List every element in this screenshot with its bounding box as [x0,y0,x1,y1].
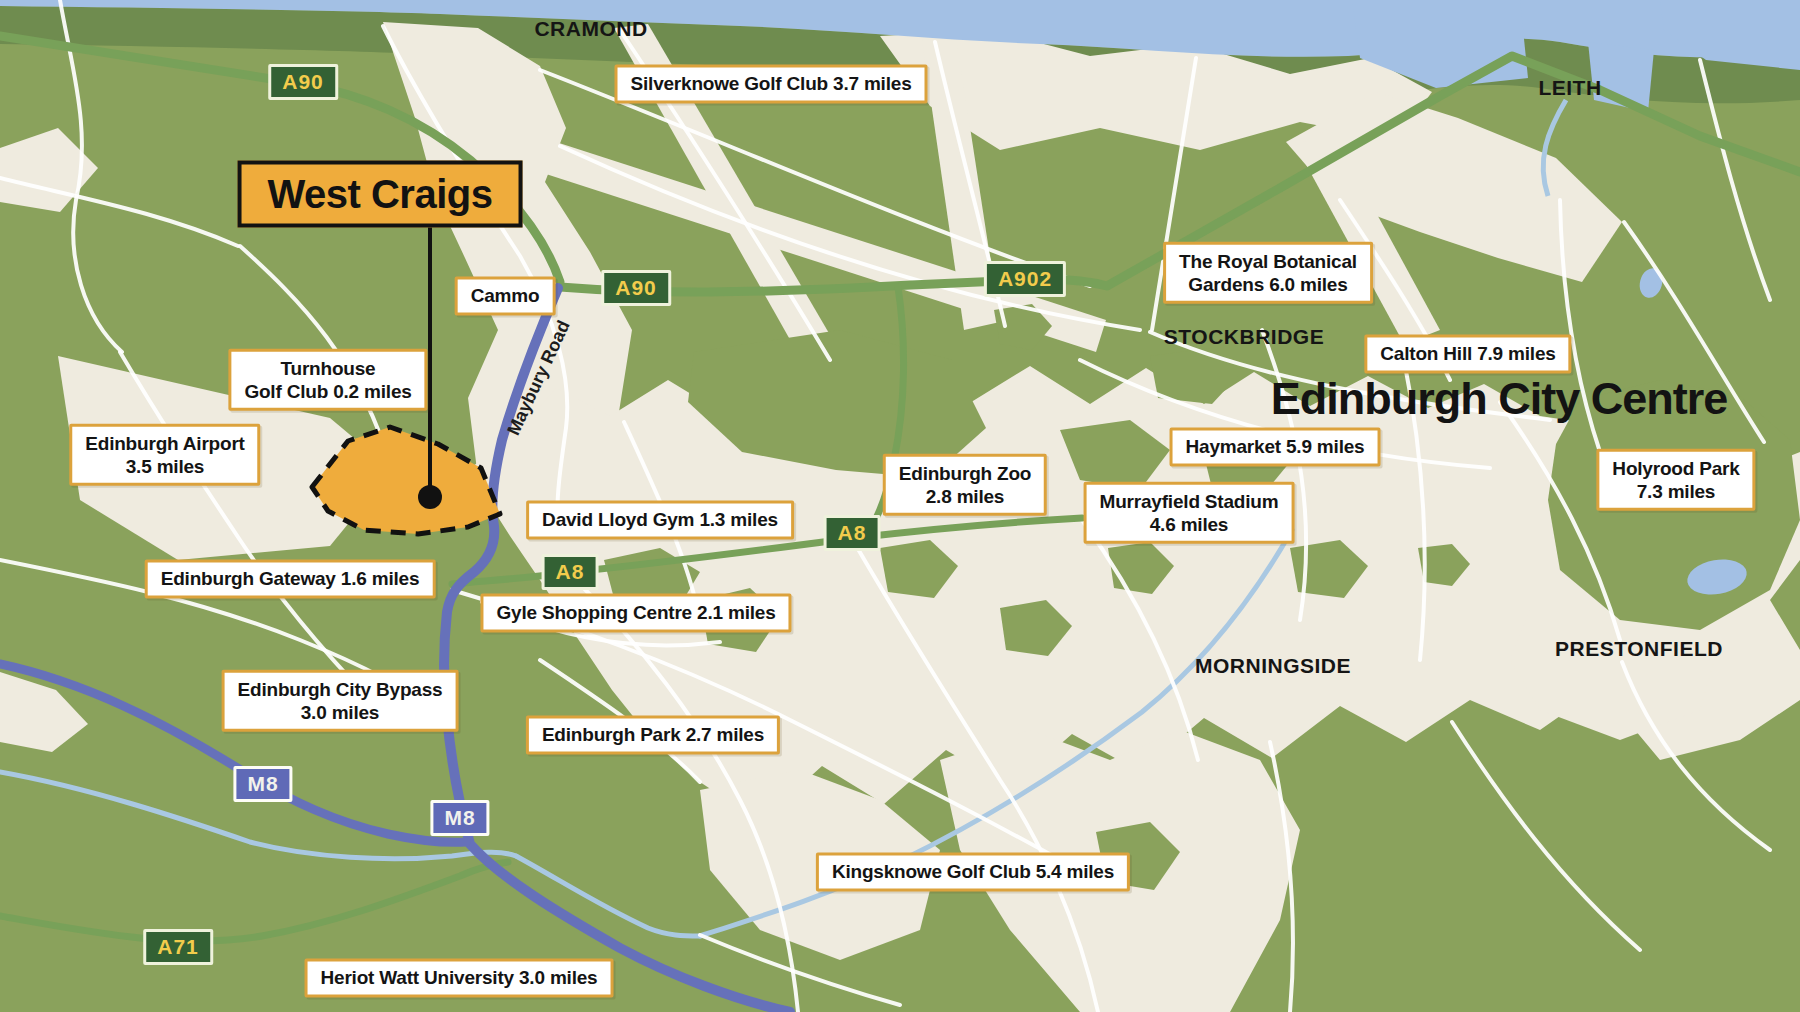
label-text: 3.5 miles [85,455,244,478]
label-text: Holyrood Park [1612,457,1739,480]
label-silverknowe-golf-club: Silverknowe Golf Club 3.7 miles [615,64,928,103]
label-text: Calton Hill 7.9 miles [1380,342,1555,365]
road-badge-a902: A902 [984,261,1066,297]
label-kingsknowe-golf-club: Kingsknowe Golf Club 5.4 miles [816,852,1130,891]
area-label-leith: LEITH [1538,76,1601,100]
label-haymarket: Haymarket 5.9 miles [1170,427,1381,466]
label-text: Cammo [471,284,540,307]
label-text: Edinburgh Gateway 1.6 miles [161,567,420,590]
area-label-stockbridge: STOCKBRIDGE [1164,325,1324,349]
label-gyle-shopping-centre: Gyle Shopping Centre 2.1 miles [480,593,791,632]
road-badge-a71: A71 [143,929,213,965]
label-text: Edinburgh Airport [85,432,244,455]
label-text: Edinburgh Park 2.7 miles [542,723,764,746]
label-calton-hill: Calton Hill 7.9 miles [1364,334,1571,373]
label-heriot-watt-university: Heriot Watt University 3.0 miles [305,958,614,997]
road-badge-a90-nw: A90 [268,64,338,100]
label-text: 7.3 miles [1612,480,1739,503]
area-label-cramond: CRAMOND [534,17,647,41]
maybury-road-label: Maybury Road [503,317,574,438]
area-label-morningside: MORNINGSIDE [1195,654,1351,678]
label-david-lloyd-gym: David Lloyd Gym 1.3 miles [526,500,794,539]
label-overlay: CRAMOND LEITH STOCKBRIDGE MORNINGSIDE PR… [0,0,1800,1012]
label-text: Golf Club 0.2 miles [244,380,411,403]
label-holyrood-park: Holyrood Park 7.3 miles [1596,449,1755,511]
label-text: Murrayfield Stadium [1100,490,1279,513]
label-edinburgh-city-bypass: Edinburgh City Bypass 3.0 miles [222,670,459,732]
label-text: The Royal Botanical [1179,250,1357,273]
label-edinburgh-airport: Edinburgh Airport 3.5 miles [69,424,260,486]
label-cammo: Cammo [455,276,556,315]
label-text: Heriot Watt University 3.0 miles [321,966,598,989]
label-murrayfield-stadium: Murrayfield Stadium 4.6 miles [1084,482,1295,544]
label-text: Gyle Shopping Centre 2.1 miles [496,601,775,624]
label-edinburgh-park: Edinburgh Park 2.7 miles [526,715,780,754]
label-text: Kingsknowe Golf Club 5.4 miles [832,860,1114,883]
label-text: David Lloyd Gym 1.3 miles [542,508,778,531]
label-text: 4.6 miles [1100,513,1279,536]
label-text: 3.0 miles [238,701,443,724]
road-badge-a8-east: A8 [824,515,881,551]
label-turnhouse-golf-club: Turnhouse Golf Club 0.2 miles [228,349,427,411]
label-royal-botanical-gardens: The Royal Botanical Gardens 6.0 miles [1163,242,1373,304]
label-text: Gardens 6.0 miles [1179,273,1357,296]
area-label-prestonfield: PRESTONFIELD [1555,637,1723,661]
label-text: Turnhouse [244,357,411,380]
road-badge-m8-west: M8 [233,766,292,802]
west-craigs-site-label: West Craigs [238,161,523,228]
label-text: Silverknowe Golf Club 3.7 miles [631,72,912,95]
label-text: Edinburgh Zoo [899,462,1031,485]
label-text: Haymarket 5.9 miles [1186,435,1365,458]
label-text: 2.8 miles [899,485,1031,508]
city-centre-title: Edinburgh City Centre [1271,373,1728,425]
map-canvas: CRAMOND LEITH STOCKBRIDGE MORNINGSIDE PR… [0,0,1800,1012]
label-edinburgh-gateway: Edinburgh Gateway 1.6 miles [145,559,436,598]
road-badge-a8-west: A8 [542,554,599,590]
label-text: Edinburgh City Bypass [238,678,443,701]
road-badge-a90-mid: A90 [601,270,671,306]
label-edinburgh-zoo: Edinburgh Zoo 2.8 miles [883,454,1047,516]
road-badge-m8-east: M8 [430,800,489,836]
